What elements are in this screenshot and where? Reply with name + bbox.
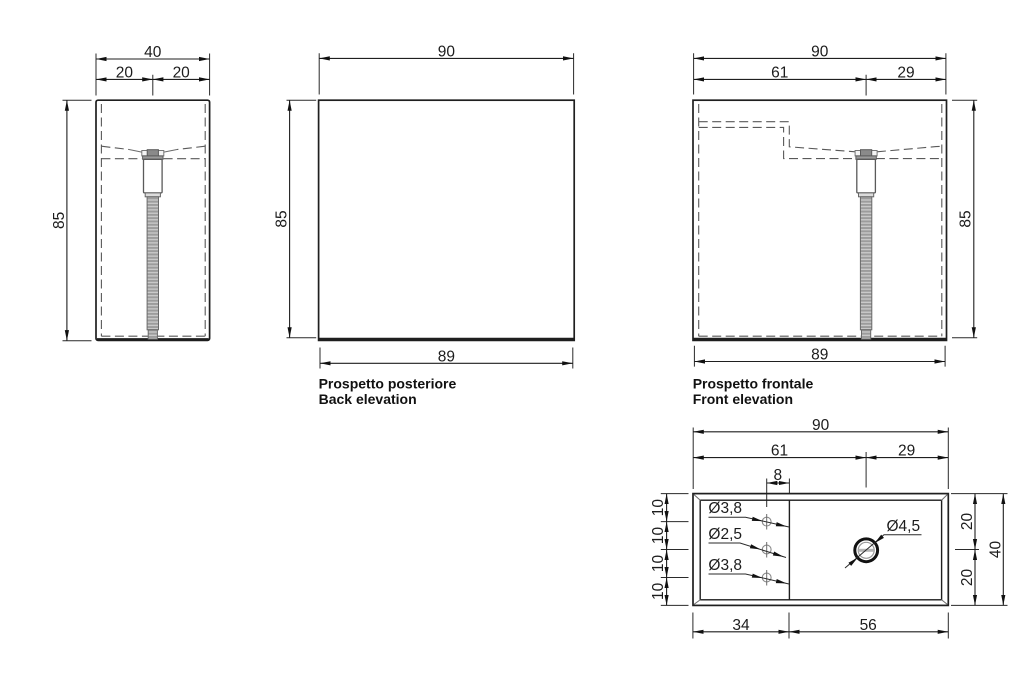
- svg-text:40: 40: [144, 44, 162, 61]
- svg-text:29: 29: [897, 64, 914, 81]
- svg-text:20: 20: [116, 64, 134, 81]
- svg-text:89: 89: [438, 348, 455, 365]
- svg-text:10: 10: [650, 555, 667, 573]
- svg-text:85: 85: [274, 210, 291, 227]
- svg-text:90: 90: [438, 43, 456, 60]
- svg-text:10: 10: [650, 499, 667, 517]
- svg-text:20: 20: [959, 569, 976, 587]
- svg-text:85: 85: [51, 212, 68, 229]
- svg-text:Ø2,5: Ø2,5: [708, 526, 742, 543]
- svg-text:89: 89: [811, 347, 828, 364]
- svg-text:61: 61: [771, 64, 788, 81]
- svg-text:90: 90: [811, 43, 829, 60]
- svg-text:Ø3,8: Ø3,8: [708, 557, 742, 574]
- svg-text:40: 40: [987, 541, 1004, 559]
- svg-text:10: 10: [650, 582, 667, 600]
- svg-text:61: 61: [771, 443, 788, 460]
- svg-text:56: 56: [860, 617, 877, 634]
- svg-text:10: 10: [650, 527, 667, 545]
- svg-text:34: 34: [732, 617, 750, 634]
- svg-text:Back elevation: Back elevation: [319, 391, 417, 407]
- svg-text:20: 20: [959, 513, 976, 531]
- svg-text:Prospetto posteriore: Prospetto posteriore: [319, 375, 457, 391]
- svg-text:90: 90: [812, 417, 830, 434]
- svg-text:85: 85: [958, 210, 975, 227]
- svg-text:Prospetto frontale: Prospetto frontale: [693, 375, 814, 391]
- svg-text:8: 8: [773, 467, 782, 484]
- svg-text:Ø3,8: Ø3,8: [708, 500, 742, 517]
- svg-text:Ø4,5: Ø4,5: [887, 518, 921, 535]
- svg-text:29: 29: [898, 443, 915, 460]
- svg-text:Front elevation: Front elevation: [693, 391, 793, 407]
- svg-text:20: 20: [173, 64, 191, 81]
